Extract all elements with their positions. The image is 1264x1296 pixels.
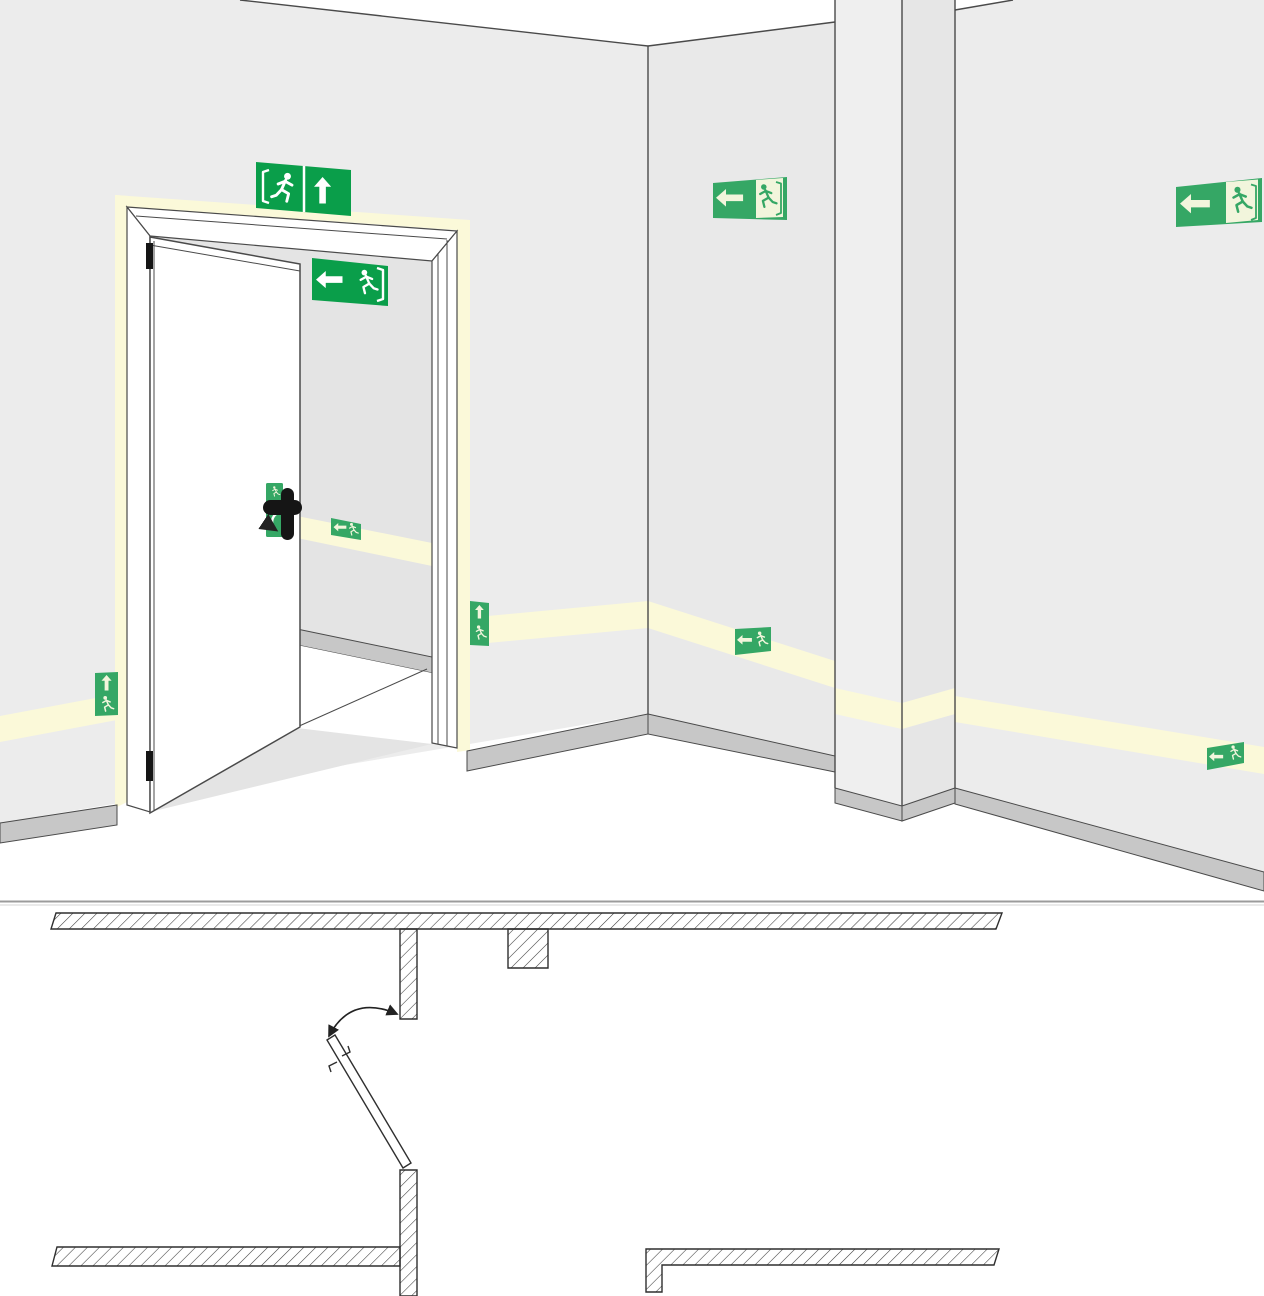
plan-door-swing-arc: [329, 1008, 397, 1036]
plan-wall-stub: [508, 929, 548, 968]
door-hinge-lower: [146, 751, 153, 781]
pillar-right-face: [902, 0, 955, 806]
strip-sign-corridor: [735, 627, 771, 655]
plan-door-handle-a: [329, 1062, 337, 1072]
exit-sign-above-door: [256, 162, 351, 216]
floor-plan: [51, 913, 1002, 1296]
plan-door-jamb-upper: [400, 929, 417, 1019]
plan-bottom-right-wall: [646, 1249, 999, 1292]
low-sign-left-of-door: [95, 672, 118, 716]
door-surround-left: [115, 195, 127, 808]
door-handle-plate: [281, 488, 294, 540]
exit-sign-inside-doorway: [312, 258, 388, 306]
door-frame-left-jamb: [127, 207, 150, 812]
door-surround-right: [457, 220, 470, 752]
plan-bottom-left-wall: [52, 1247, 400, 1266]
plan-top-wall: [51, 913, 1002, 929]
low-sign-right-of-door: [470, 601, 489, 646]
plan-door-jamb-lower: [400, 1170, 417, 1296]
exit-sign-corridor-wall: [713, 177, 787, 220]
door-frame-right-jamb: [432, 231, 457, 748]
door-hinge-upper: [146, 243, 153, 269]
plan-door-leaf: [327, 1035, 411, 1168]
perspective-view: [0, 0, 1264, 891]
pillar-left-face: [835, 0, 902, 806]
escape-route-illustration: [0, 0, 1264, 1296]
